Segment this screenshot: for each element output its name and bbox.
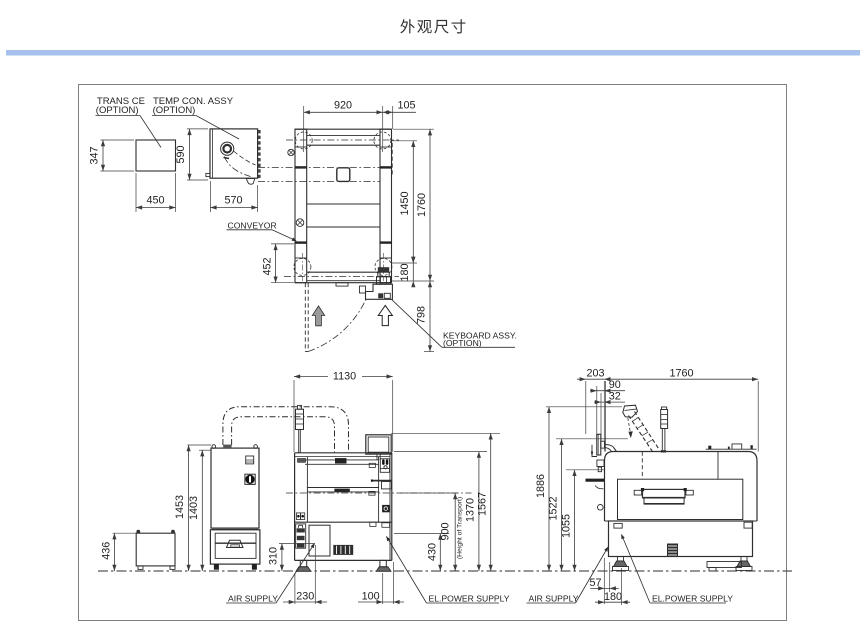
svg-text:(OPTION): (OPTION) [153,105,196,116]
svg-text:452: 452 [261,257,273,275]
svg-text:90: 90 [609,379,621,391]
svg-text:436: 436 [100,542,112,560]
svg-text:1130: 1130 [333,371,356,383]
svg-text:(Height of Transport): (Height of Transport) [457,497,464,559]
svg-text:230: 230 [296,590,314,602]
svg-text:180: 180 [399,263,411,281]
svg-text:57: 57 [589,577,601,589]
svg-text:430: 430 [426,543,438,561]
svg-text:570: 570 [224,195,242,207]
svg-text:AIR SUPPLY: AIR SUPPLY [228,594,278,604]
svg-text:1886: 1886 [535,474,547,498]
svg-text:180: 180 [604,591,622,603]
svg-text:1567: 1567 [477,492,489,516]
svg-text:EL.POWER SUPPLY: EL.POWER SUPPLY [429,594,510,604]
svg-text:EL.POWER SUPPLY: EL.POWER SUPPLY [652,594,733,604]
svg-text:1453: 1453 [174,495,186,519]
svg-text:920: 920 [334,100,352,112]
svg-text:AIR SUPPLY: AIR SUPPLY [529,594,579,604]
svg-text:(OPTION): (OPTION) [96,105,139,116]
svg-text:203: 203 [586,368,604,380]
svg-text:590: 590 [175,145,187,163]
svg-text:105: 105 [397,100,415,112]
svg-text:347: 347 [89,146,101,164]
svg-text:(OPTION): (OPTION) [443,338,482,348]
svg-text:100: 100 [362,590,380,602]
svg-text:1760: 1760 [669,368,693,380]
svg-text:310: 310 [267,547,279,565]
svg-text:1760: 1760 [416,193,428,217]
svg-text:1055: 1055 [560,514,572,538]
svg-text:CONVEYOR: CONVEYOR [228,220,277,230]
svg-text:450: 450 [146,195,164,207]
svg-text:1450: 1450 [399,191,411,215]
svg-text:900: 900 [440,522,452,540]
svg-text:1522: 1522 [548,496,560,520]
svg-text:1403: 1403 [188,496,200,520]
svg-text:1370: 1370 [465,498,477,522]
svg-text:798: 798 [416,306,428,324]
svg-text:32: 32 [609,390,621,402]
